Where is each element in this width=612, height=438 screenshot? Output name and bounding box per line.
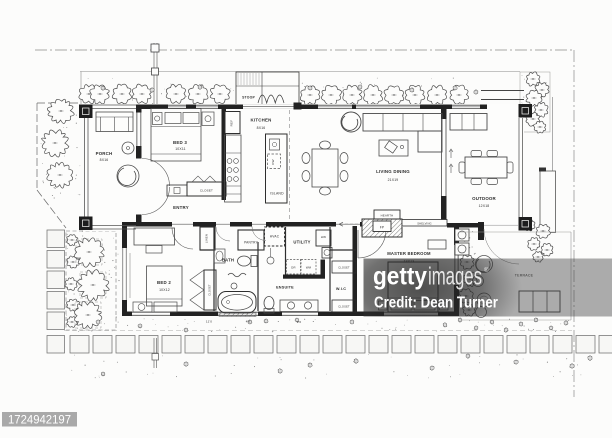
svg-text:4'6: 4'6 xyxy=(246,320,251,324)
svg-text:8X16: 8X16 xyxy=(257,126,266,130)
svg-text:STOOP: STOOP xyxy=(242,96,255,100)
svg-text:LINEN: LINEN xyxy=(205,234,209,243)
svg-text:HW: HW xyxy=(321,235,326,239)
svg-text:HVAC: HVAC xyxy=(270,235,280,239)
svg-text:WM: WM xyxy=(306,266,312,270)
svg-text:BATH: BATH xyxy=(222,258,234,263)
svg-text:CLOSET: CLOSET xyxy=(200,189,213,193)
svg-text:PANTRY: PANTRY xyxy=(244,241,259,245)
svg-text:10X12: 10X12 xyxy=(159,288,170,292)
svg-text:HEARTH: HEARTH xyxy=(381,214,394,218)
svg-text:®: ® xyxy=(484,267,489,274)
svg-text:DR: DR xyxy=(291,266,295,270)
svg-text:LIVING DINING: LIVING DINING xyxy=(376,169,410,174)
svg-text:10X11: 10X11 xyxy=(175,147,186,151)
svg-text:REF: REF xyxy=(230,120,234,127)
svg-text:images: images xyxy=(428,263,482,291)
svg-text:MASTER BEDROOM: MASTER BEDROOM xyxy=(387,251,431,256)
svg-text:BED 2: BED 2 xyxy=(157,280,171,285)
svg-text:SHELVING: SHELVING xyxy=(417,222,432,226)
svg-text:12X18: 12X18 xyxy=(479,204,490,208)
svg-text:Credit: Dean Turner: Credit: Dean Turner xyxy=(374,295,498,312)
svg-text:1724942197: 1724942197 xyxy=(8,415,71,427)
svg-text:8X16: 8X16 xyxy=(100,158,109,162)
svg-text:ENTRY: ENTRY xyxy=(173,205,189,210)
svg-text:11'0: 11'0 xyxy=(206,320,212,324)
svg-text:KITCHEN: KITCHEN xyxy=(251,118,272,123)
svg-text:21X19: 21X19 xyxy=(388,178,399,182)
svg-text:PORCH: PORCH xyxy=(96,151,113,156)
svg-text:ENSUITE: ENSUITE xyxy=(276,286,294,290)
svg-text:FP: FP xyxy=(380,226,384,230)
svg-text:OUTDOOR: OUTDOOR xyxy=(472,196,496,201)
svg-text:UTILITY: UTILITY xyxy=(293,240,310,245)
svg-text:BED 3: BED 3 xyxy=(173,140,187,145)
svg-text:getty: getty xyxy=(373,263,427,291)
svg-text:DW: DW xyxy=(271,159,275,164)
svg-text:9'6: 9'6 xyxy=(297,320,302,324)
svg-text:CLOSET: CLOSET xyxy=(208,284,212,296)
svg-text:W.I.C: W.I.C xyxy=(336,287,346,291)
svg-text:ISLAND: ISLAND xyxy=(270,192,284,196)
svg-text:CLOSET: CLOSET xyxy=(338,305,350,309)
svg-text:CLOSET: CLOSET xyxy=(338,266,350,270)
